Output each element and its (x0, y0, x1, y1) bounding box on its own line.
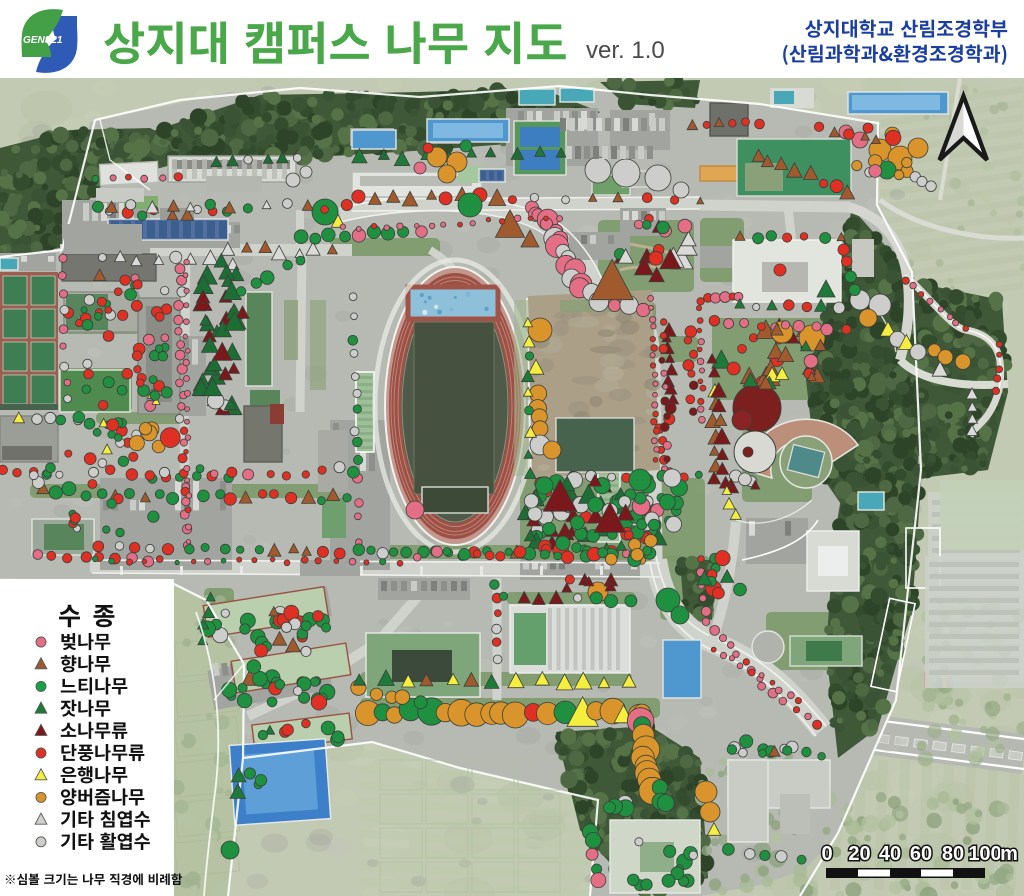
svg-text:80: 80 (942, 843, 964, 865)
svg-text:100: 100 (968, 843, 1001, 865)
svg-text:40: 40 (879, 843, 901, 865)
svg-text:0: 0 (821, 843, 832, 865)
svg-text:20: 20 (848, 843, 870, 865)
svg-text:ver. 1.0: ver. 1.0 (586, 37, 665, 64)
svg-text:GENS21: GENS21 (23, 35, 63, 46)
svg-text:m: m (1000, 843, 1018, 865)
svg-text:60: 60 (910, 843, 932, 865)
